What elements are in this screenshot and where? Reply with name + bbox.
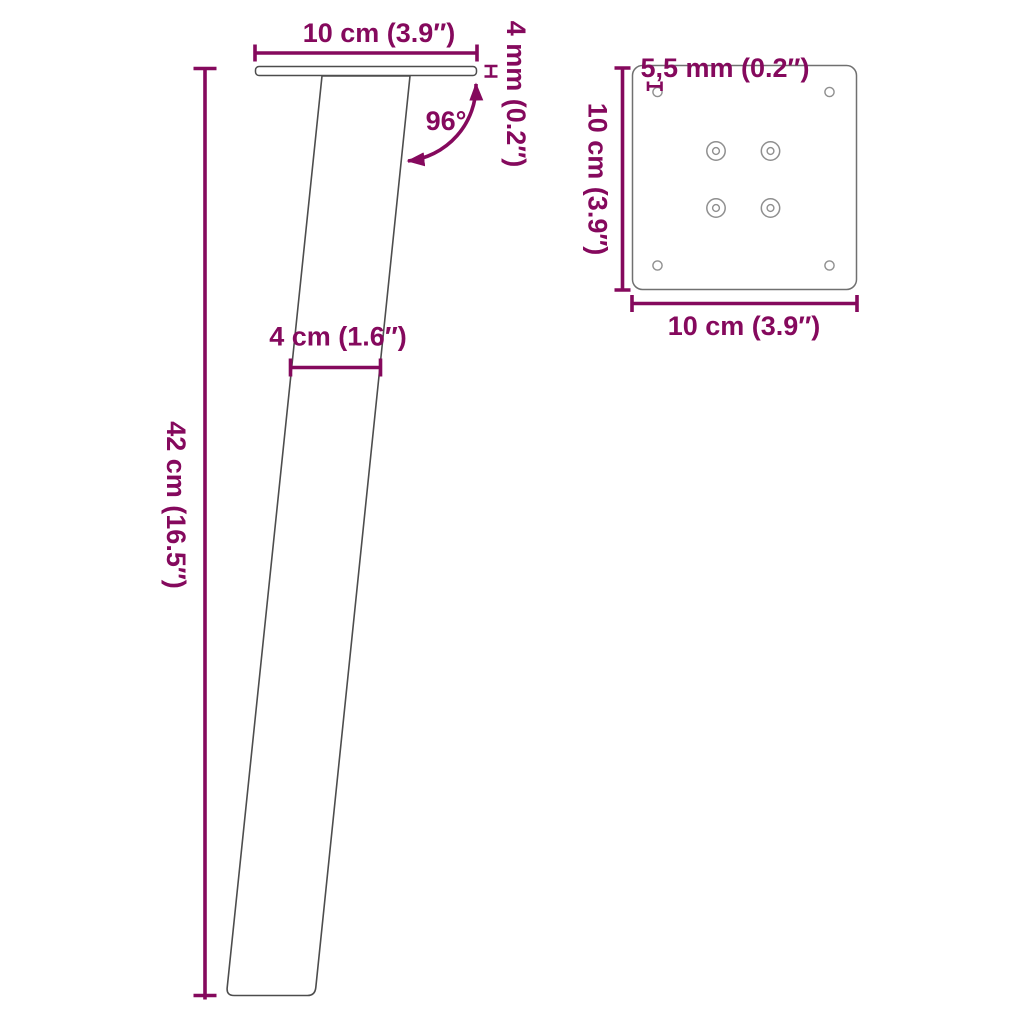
- mounting-plate-outline: [633, 66, 857, 290]
- diagram-canvas: 10 cm (3.9″) 42 cm (16.5″) 4 cm (1.6″) 4…: [0, 0, 1024, 1024]
- height-dimension: 42 cm (16.5″): [161, 69, 217, 1000]
- thickness-bracket: [485, 66, 498, 77]
- top-width-dimension: 10 cm (3.9″): [255, 18, 477, 62]
- center-hole: [707, 142, 725, 160]
- angle-annotation: 96°: [408, 84, 476, 161]
- plate-width-dimension: 10 cm (3.9″): [632, 295, 857, 341]
- center-hole: [761, 199, 779, 217]
- corner-hole: [825, 87, 834, 96]
- angle-label: 96°: [426, 106, 467, 136]
- dimension-line: [615, 68, 631, 290]
- height-label: 42 cm (16.5″): [161, 421, 191, 589]
- plate-depth-dimension: 10 cm (3.9″): [583, 68, 631, 290]
- center-hole-inner: [713, 205, 720, 212]
- mounting-plate-side: [256, 67, 477, 76]
- plate-thickness-label: 4 mm (0.2″): [501, 21, 531, 167]
- center-hole-inner: [713, 148, 720, 155]
- top-width-label: 10 cm (3.9″): [303, 18, 456, 48]
- leg-outline-shape: [227, 76, 410, 996]
- dimension-line: [194, 69, 217, 1000]
- dimension-line: [632, 295, 857, 312]
- plate-depth-label: 10 cm (3.9″): [583, 103, 613, 256]
- center-hole: [761, 142, 779, 160]
- plate-thickness-dimension: 4 mm (0.2″): [485, 21, 532, 167]
- plate-width-label: 10 cm (3.9″): [668, 311, 821, 341]
- corner-hole: [653, 261, 662, 270]
- center-hole-inner: [767, 148, 774, 155]
- corner-hole: [825, 261, 834, 270]
- mounting-plate-top-view: 5,5 mm (0.2″) 10 cm (3.9″) 10 cm (3.9″): [583, 53, 858, 341]
- center-hole-inner: [767, 205, 774, 212]
- center-hole: [707, 199, 725, 217]
- hole-diameter-label: 5,5 mm (0.2″): [640, 53, 809, 83]
- leg-width-label: 4 cm (1.6″): [269, 322, 407, 352]
- leg-width-dimension: 4 cm (1.6″): [269, 322, 407, 377]
- product-dimension-diagram: 10 cm (3.9″) 42 cm (16.5″) 4 cm (1.6″) 4…: [0, 0, 1024, 1024]
- leg-side-view: 10 cm (3.9″) 42 cm (16.5″) 4 cm (1.6″) 4…: [161, 18, 531, 1000]
